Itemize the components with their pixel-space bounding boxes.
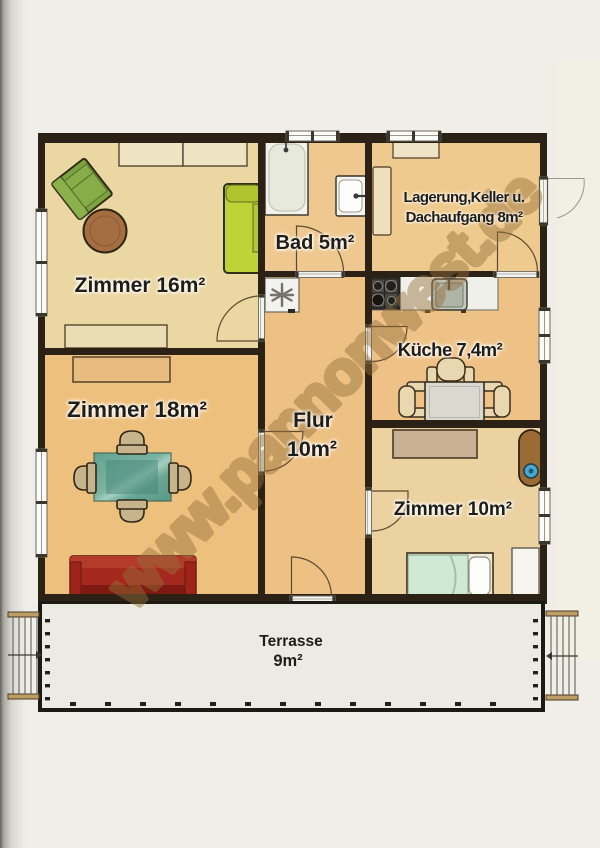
svg-text:Lagerung,Keller u.: Lagerung,Keller u. — [404, 189, 525, 206]
svg-text:Dachaufgang 8m²: Dachaufgang 8m² — [406, 209, 523, 226]
svg-text:10m²: 10m² — [287, 437, 337, 461]
svg-text:Bad 5m²: Bad 5m² — [276, 232, 355, 254]
svg-text:Zimmer 16m²: Zimmer 16m² — [75, 274, 206, 297]
svg-text:Flur: Flur — [293, 409, 333, 432]
svg-text:Terrasse: Terrasse — [259, 633, 323, 650]
svg-text:Zimmer 18m²: Zimmer 18m² — [67, 397, 208, 422]
svg-text:Küche 7,4m²: Küche 7,4m² — [398, 339, 503, 360]
svg-text:9m²: 9m² — [273, 652, 303, 670]
svg-text:Zimmer 10m²: Zimmer 10m² — [394, 499, 512, 520]
